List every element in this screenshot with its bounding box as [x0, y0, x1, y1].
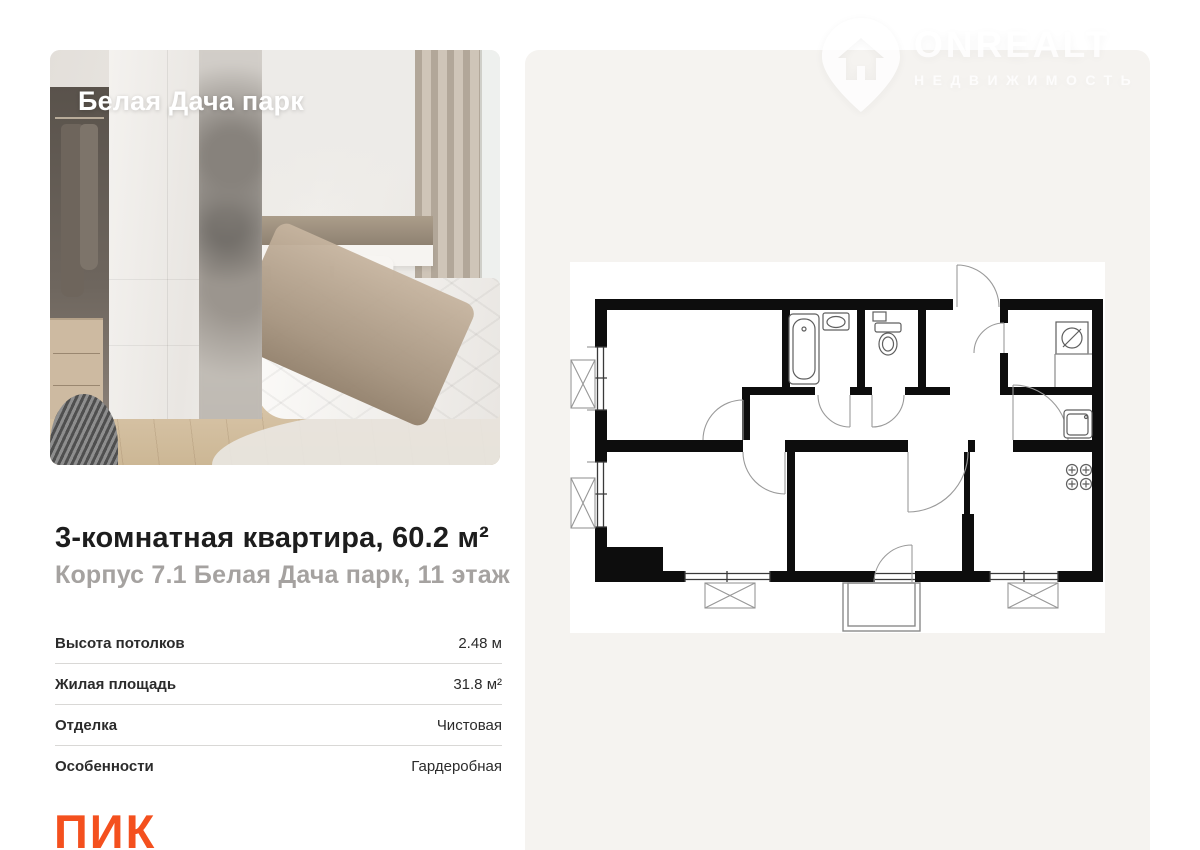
bathtub-icon — [789, 314, 819, 384]
bathroom-door-arc — [818, 395, 850, 427]
row-label: Жилая площадь — [55, 676, 176, 693]
listing-card: ONREALT НЕДВИЖИМОСТЬ — [0, 0, 1200, 850]
interior-walls — [607, 310, 1092, 571]
row-label: Высота потолков — [55, 635, 185, 652]
table-row: Особенности Гардеробная — [55, 746, 502, 786]
balcony-door-arc — [874, 545, 912, 583]
balcony — [843, 583, 920, 631]
table-row: Высота потолков 2.48 м — [55, 623, 502, 664]
table-row: Отделка Чистовая — [55, 705, 502, 746]
row-value: 31.8 м² — [453, 676, 502, 693]
stove-icon — [1067, 465, 1092, 490]
kitchen-sink-icon — [1064, 410, 1092, 438]
floor-plan-drawing — [570, 262, 1105, 633]
onrealt-watermark: ONREALT НЕДВИЖИМОСТЬ — [822, 18, 1139, 112]
entrance-door-arc — [957, 265, 999, 307]
watermark-text: ONREALT НЕДВИЖИМОСТЬ — [914, 18, 1139, 88]
floor-plan — [570, 262, 1105, 633]
bedroom2-door-arc — [908, 452, 968, 512]
bedroom1-door-arc — [743, 452, 785, 494]
washbasin-icon — [823, 313, 849, 330]
toilet-icon — [873, 312, 901, 355]
pik-logo: ПИК — [54, 808, 156, 850]
laundry-door-arc — [974, 323, 1004, 353]
photo-overlay-title: Белая Дача парк — [78, 86, 304, 117]
row-label: Отделка — [55, 717, 117, 734]
row-label: Особенности — [55, 758, 154, 775]
property-photo: Белая Дача парк — [50, 50, 500, 465]
living-room-door-arc — [703, 400, 743, 440]
details-table: Высота потолков 2.48 м Жилая площадь 31.… — [55, 623, 502, 786]
watermark-tagline: НЕДВИЖИМОСТЬ — [914, 72, 1139, 88]
row-value: 2.48 м — [458, 635, 502, 652]
photo-open-closet — [50, 87, 109, 419]
toilet-door-arc — [872, 395, 904, 427]
table-row: Жилая площадь 31.8 м² — [55, 664, 502, 705]
listing-subtitle: Корпус 7.1 Белая Дача парк, 11 этаж — [55, 561, 535, 590]
row-value: Гардеробная — [411, 758, 502, 775]
watermark-brand: ONREALT — [914, 26, 1139, 63]
windows — [595, 347, 1058, 582]
washing-machine-icon — [1056, 322, 1088, 354]
row-value: Чистовая — [437, 717, 502, 734]
onrealt-pin-home-icon — [822, 18, 900, 112]
laundry-cabinet — [1055, 354, 1092, 387]
listing-title: 3-комнатная квартира, 60.2 м² — [55, 522, 525, 555]
